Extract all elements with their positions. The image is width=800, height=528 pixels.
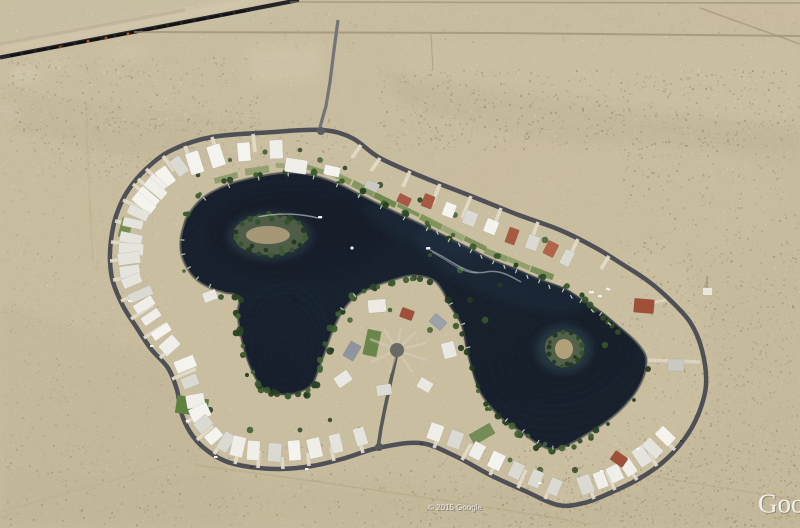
svg-text:Google: Google xyxy=(758,489,800,519)
svg-text:© 2015 Google: © 2015 Google xyxy=(428,503,482,512)
